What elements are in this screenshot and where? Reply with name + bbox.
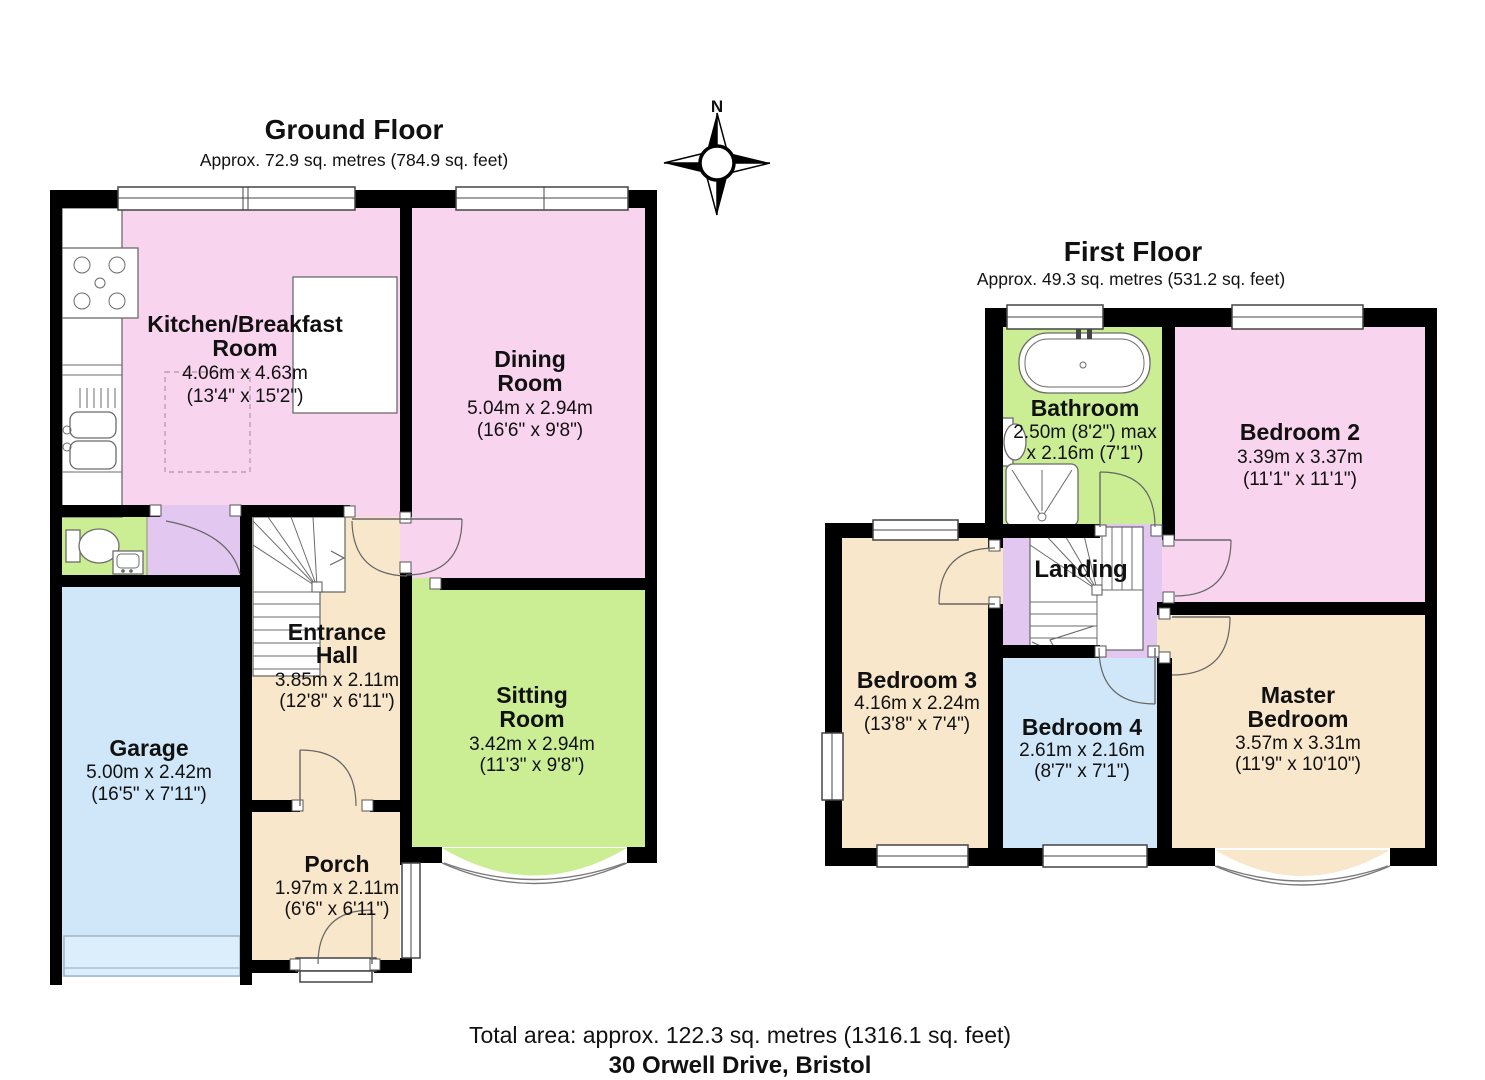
svg-text:(11'1" x 11'1"): (11'1" x 11'1") bbox=[1243, 469, 1357, 490]
bedroom3-label: Bedroom 3 4.16m x 2.24m (13'8" x 7'4") bbox=[854, 667, 980, 735]
svg-text:Hall: Hall bbox=[316, 642, 358, 668]
first-floor-plan bbox=[822, 305, 1437, 885]
staircase-first bbox=[1030, 527, 1143, 654]
front-door-threshold bbox=[296, 958, 376, 971]
svg-text:Sitting: Sitting bbox=[496, 682, 568, 708]
ground-floor-subtitle: Approx. 72.9 sq. metres (784.9 sq. feet) bbox=[200, 150, 508, 170]
svg-text:(12'8" x 6'11"): (12'8" x 6'11") bbox=[279, 691, 394, 712]
compass-icon: N bbox=[664, 97, 770, 215]
svg-text:Dining: Dining bbox=[494, 346, 566, 372]
bedroom4-label: Bedroom 4 2.61m x 2.16m (8'7" x 7'1") bbox=[1019, 714, 1145, 782]
floorplan-drawing: N Ground Floor Approx. 72.9 sq. metres (… bbox=[0, 0, 1485, 1080]
bathroom-label: Bathroom 2.50m (8'2") max x 2.16m (7'1") bbox=[1013, 395, 1157, 464]
first-floor-subtitle: Approx. 49.3 sq. metres (531.2 sq. feet) bbox=[977, 269, 1285, 289]
garage-door bbox=[64, 936, 240, 976]
svg-text:Kitchen/Breakfast: Kitchen/Breakfast bbox=[147, 311, 343, 337]
svg-text:x 2.16m (7'1"): x 2.16m (7'1") bbox=[1026, 443, 1143, 464]
svg-text:(16'5" x 7'11"): (16'5" x 7'11") bbox=[91, 784, 206, 805]
svg-text:Garage: Garage bbox=[109, 735, 188, 761]
shower-icon bbox=[1006, 464, 1078, 526]
svg-text:(13'4" x 15'2"): (13'4" x 15'2") bbox=[187, 386, 304, 407]
svg-text:(6'6" x 6'11"): (6'6" x 6'11") bbox=[285, 899, 390, 920]
compass-north-label: N bbox=[711, 97, 723, 116]
svg-text:Bathroom: Bathroom bbox=[1031, 395, 1140, 421]
svg-text:(11'3" x 9'8"): (11'3" x 9'8") bbox=[480, 755, 585, 776]
svg-text:4.06m x 4.63m: 4.06m x 4.63m bbox=[182, 363, 308, 384]
svg-text:3.39m x 3.37m: 3.39m x 3.37m bbox=[1237, 447, 1363, 468]
svg-text:Bedroom: Bedroom bbox=[1248, 706, 1349, 732]
kitchen-island bbox=[293, 277, 397, 413]
svg-text:2.61m x 2.16m: 2.61m x 2.16m bbox=[1019, 740, 1145, 761]
first-floor-title: First Floor bbox=[1064, 236, 1203, 267]
ground-floor-title: Ground Floor bbox=[265, 114, 444, 145]
svg-text:Porch: Porch bbox=[304, 851, 369, 877]
bedroom2-label: Bedroom 2 3.39m x 3.37m (11'1" x 11'1") bbox=[1237, 419, 1363, 490]
svg-text:1.97m x 2.11m: 1.97m x 2.11m bbox=[275, 878, 399, 899]
toilet-icon bbox=[66, 530, 80, 562]
hallway-passage bbox=[147, 517, 240, 575]
svg-text:Master: Master bbox=[1261, 682, 1335, 708]
svg-text:5.04m x 2.94m: 5.04m x 2.94m bbox=[467, 398, 593, 419]
total-area-text: Total area: approx. 122.3 sq. metres (13… bbox=[469, 1022, 1011, 1048]
hob-icon bbox=[62, 248, 138, 318]
svg-text:Bedroom 2: Bedroom 2 bbox=[1240, 419, 1360, 445]
svg-text:2.50m (8'2") max: 2.50m (8'2") max bbox=[1013, 422, 1157, 443]
svg-text:Room: Room bbox=[499, 706, 564, 732]
svg-text:(11'9" x 10'10"): (11'9" x 10'10") bbox=[1235, 754, 1361, 775]
svg-text:Bedroom 3: Bedroom 3 bbox=[857, 667, 977, 693]
svg-text:4.16m x 2.24m: 4.16m x 2.24m bbox=[854, 693, 980, 714]
svg-text:Bedroom 4: Bedroom 4 bbox=[1022, 714, 1142, 740]
svg-text:3.57m x 3.31m: 3.57m x 3.31m bbox=[1235, 733, 1361, 754]
svg-text:5.00m x 2.42m: 5.00m x 2.42m bbox=[86, 762, 212, 783]
svg-text:Landing: Landing bbox=[1034, 556, 1127, 583]
address-text: 30 Orwell Drive, Bristol bbox=[609, 1052, 872, 1079]
svg-text:3.85m x 2.11m: 3.85m x 2.11m bbox=[275, 670, 399, 691]
svg-text:Room: Room bbox=[497, 370, 562, 396]
svg-text:Room: Room bbox=[212, 335, 277, 361]
landing-label: Landing bbox=[1034, 556, 1127, 583]
svg-text:(13'8" x 7'4"): (13'8" x 7'4") bbox=[864, 714, 970, 735]
svg-text:3.42m x 2.94m: 3.42m x 2.94m bbox=[469, 734, 595, 755]
floorplan-page: N Ground Floor Approx. 72.9 sq. metres (… bbox=[0, 0, 1485, 1080]
svg-text:(16'6" x 9'8"): (16'6" x 9'8") bbox=[477, 420, 583, 441]
svg-text:(8'7" x 7'1"): (8'7" x 7'1") bbox=[1034, 761, 1130, 782]
